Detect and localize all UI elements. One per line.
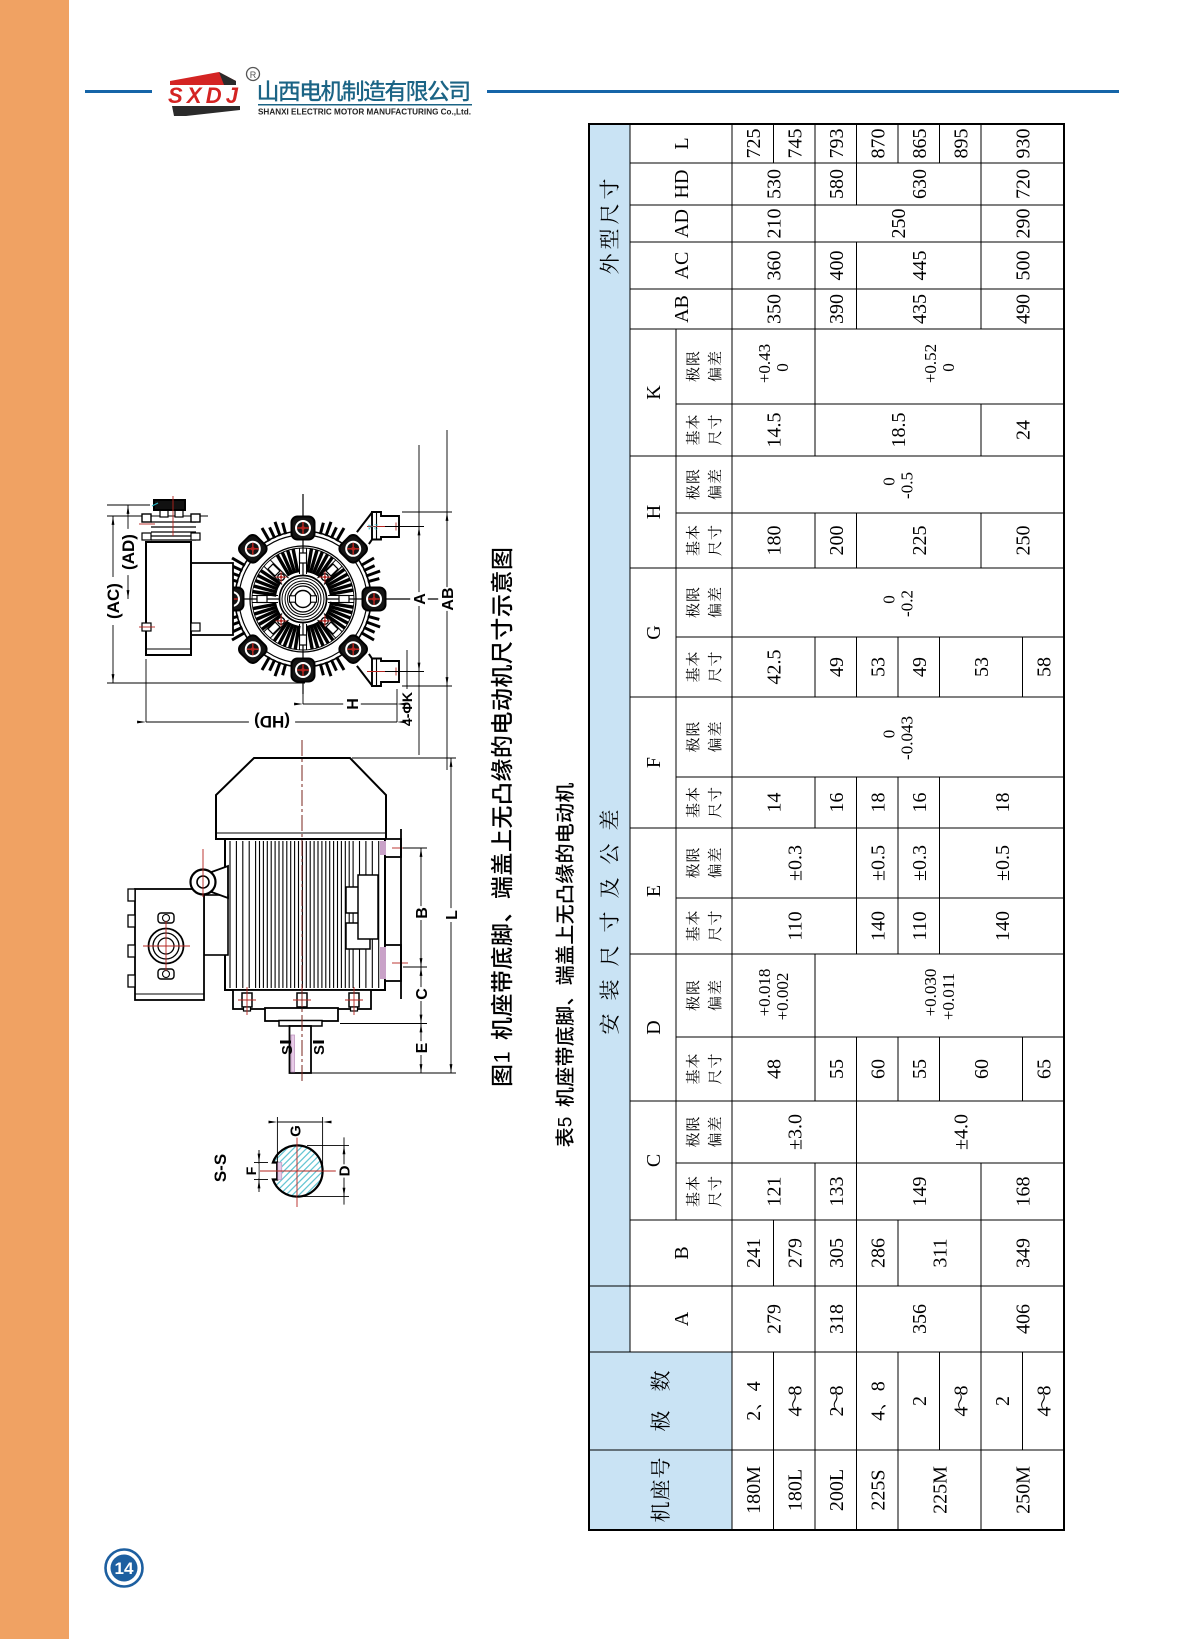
- svg-text:E: E: [643, 885, 665, 897]
- svg-text:16: 16: [826, 793, 848, 813]
- svg-text:180L: 180L: [784, 1469, 806, 1511]
- svg-text:530: 530: [764, 169, 786, 199]
- svg-text:8: 8: [950, 1386, 972, 1396]
- svg-text:930: 930: [1013, 129, 1035, 159]
- svg-text:500: 500: [1013, 251, 1035, 281]
- svg-text:2: 2: [992, 1396, 1014, 1406]
- svg-text:356: 356: [909, 1304, 931, 1334]
- svg-text:H: H: [643, 505, 665, 519]
- svg-text:168: 168: [1013, 1177, 1035, 1207]
- svg-text:895: 895: [950, 129, 972, 159]
- svg-text:E: E: [414, 1042, 431, 1053]
- svg-text:16: 16: [909, 793, 931, 813]
- svg-text:42.5: 42.5: [764, 650, 786, 685]
- svg-text:G: G: [287, 1125, 304, 1137]
- svg-text:4: 4: [784, 1407, 806, 1417]
- svg-text:55: 55: [909, 1059, 931, 1079]
- svg-text:±0.5: ±0.5: [992, 845, 1014, 881]
- svg-text:53: 53: [971, 657, 993, 677]
- svg-text:A: A: [671, 1311, 693, 1326]
- svg-text:+0.011: +0.011: [939, 973, 958, 1020]
- svg-text:406: 406: [1013, 1304, 1035, 1334]
- svg-text:200L: 200L: [826, 1469, 848, 1511]
- svg-text:225: 225: [909, 526, 931, 556]
- svg-text:49: 49: [909, 657, 931, 677]
- svg-text:18: 18: [992, 793, 1014, 813]
- svg-text:1: 1: [490, 1051, 515, 1063]
- svg-text:290: 290: [1013, 209, 1035, 239]
- svg-text:D: D: [643, 1020, 665, 1034]
- svg-text:(AD): (AD): [119, 534, 138, 570]
- svg-text:C: C: [414, 988, 431, 1000]
- svg-text:279: 279: [784, 1238, 806, 1268]
- svg-text:630: 630: [909, 169, 931, 199]
- svg-text:60: 60: [867, 1059, 889, 1079]
- svg-text:B: B: [414, 907, 431, 919]
- svg-text:286: 286: [867, 1238, 889, 1268]
- svg-text:8: 8: [1033, 1386, 1055, 1396]
- svg-text:HD: HD: [671, 170, 693, 199]
- svg-text:110: 110: [784, 911, 806, 940]
- svg-text:580: 580: [826, 169, 848, 199]
- svg-text:±0.5: ±0.5: [867, 845, 889, 881]
- svg-text:210: 210: [764, 209, 786, 239]
- svg-text:2-4: 2-4: [368, 523, 378, 530]
- svg-text:149: 149: [909, 1177, 931, 1207]
- svg-text:390: 390: [826, 294, 848, 324]
- svg-text:+0.002: +0.002: [773, 973, 792, 1021]
- svg-text:+0.52: +0.52: [921, 344, 940, 383]
- svg-text:250: 250: [1013, 526, 1035, 556]
- svg-text:±0.3: ±0.3: [784, 845, 806, 881]
- svg-text:318: 318: [826, 1304, 848, 1334]
- svg-text:445: 445: [909, 251, 931, 281]
- svg-text:0: 0: [939, 363, 958, 372]
- svg-text:+0.030: +0.030: [921, 969, 940, 1017]
- svg-text:4: 4: [867, 1411, 889, 1421]
- svg-text:(AC): (AC): [104, 583, 123, 619]
- svg-text:4: 4: [1033, 1407, 1055, 1417]
- svg-text:725: 725: [743, 129, 765, 159]
- svg-text:+0.018: +0.018: [755, 969, 774, 1017]
- svg-text:793: 793: [826, 129, 848, 159]
- svg-text:225M: 225M: [930, 1466, 952, 1514]
- svg-text:349: 349: [1013, 1238, 1035, 1268]
- svg-text:2: 2: [743, 1411, 765, 1421]
- svg-text:B: B: [671, 1246, 693, 1259]
- svg-text:S: S: [279, 1045, 296, 1055]
- svg-text:4: 4: [743, 1381, 765, 1391]
- svg-text:0: 0: [880, 595, 899, 604]
- svg-text:L: L: [444, 910, 461, 920]
- svg-text:121: 121: [764, 1177, 786, 1207]
- svg-text:AB: AB: [671, 295, 693, 323]
- svg-text:±4.0: ±4.0: [950, 1114, 972, 1150]
- svg-text:241: 241: [743, 1238, 765, 1268]
- svg-text:±0.3: ±0.3: [909, 845, 931, 881]
- svg-text:S: S: [311, 1045, 328, 1055]
- svg-text:18: 18: [867, 793, 889, 813]
- svg-text:180: 180: [764, 526, 786, 556]
- svg-text:S-S: S-S: [211, 1154, 230, 1182]
- svg-text:G: G: [643, 625, 665, 639]
- svg-text:250: 250: [888, 209, 910, 239]
- svg-text:L: L: [671, 137, 693, 149]
- svg-text:D: D: [336, 1165, 353, 1176]
- svg-text:0: 0: [773, 363, 792, 372]
- svg-text:H: H: [345, 698, 362, 710]
- svg-text:0: 0: [880, 477, 899, 486]
- svg-text:720: 720: [1013, 169, 1035, 199]
- svg-text:133: 133: [826, 1177, 848, 1207]
- svg-text:4-ΦK: 4-ΦK: [399, 692, 415, 726]
- svg-text:55: 55: [826, 1059, 848, 1079]
- svg-text:0: 0: [880, 730, 899, 739]
- svg-text:200: 200: [826, 526, 848, 556]
- svg-text:AC: AC: [671, 252, 693, 280]
- svg-text:490: 490: [1013, 294, 1035, 324]
- svg-text:24: 24: [1013, 420, 1035, 440]
- svg-text:-0.5: -0.5: [898, 472, 917, 499]
- svg-text:14.5: 14.5: [764, 413, 786, 448]
- svg-text:745: 745: [784, 129, 806, 159]
- svg-text:400: 400: [826, 251, 848, 281]
- svg-text:225S: 225S: [867, 1469, 889, 1510]
- svg-text:8: 8: [826, 1386, 848, 1396]
- svg-text:5: 5: [556, 1117, 577, 1128]
- svg-text:18.5: 18.5: [888, 413, 910, 448]
- svg-text:435: 435: [909, 294, 931, 324]
- svg-text:C: C: [643, 1154, 665, 1167]
- svg-text:14: 14: [764, 793, 786, 813]
- svg-text:58: 58: [1033, 657, 1055, 677]
- svg-text:(HD): (HD): [254, 712, 290, 731]
- svg-text:180M: 180M: [743, 1466, 765, 1514]
- svg-text:60: 60: [971, 1059, 993, 1079]
- svg-text:14: 14: [115, 1559, 134, 1578]
- svg-text:53: 53: [867, 657, 889, 677]
- svg-text:-0.2: -0.2: [898, 590, 917, 617]
- svg-text:8: 8: [867, 1381, 889, 1391]
- svg-text:870: 870: [867, 129, 889, 159]
- svg-text:8: 8: [784, 1386, 806, 1396]
- svg-text:865: 865: [909, 129, 931, 159]
- svg-text:350: 350: [764, 294, 786, 324]
- svg-text:305: 305: [826, 1238, 848, 1268]
- svg-text:F: F: [243, 1166, 259, 1175]
- svg-text:AD: AD: [671, 209, 693, 238]
- svg-text:48: 48: [764, 1059, 786, 1079]
- svg-text:2: 2: [826, 1407, 848, 1417]
- svg-text:2: 2: [909, 1396, 931, 1406]
- svg-text:A: A: [412, 593, 429, 605]
- svg-text:K: K: [643, 385, 665, 400]
- svg-text:140: 140: [992, 911, 1014, 941]
- svg-text:311: 311: [930, 1238, 952, 1267]
- svg-text:F: F: [643, 757, 665, 768]
- svg-text:4: 4: [950, 1407, 972, 1417]
- svg-text:AB: AB: [440, 587, 457, 610]
- svg-text:110: 110: [909, 911, 931, 940]
- svg-text:65: 65: [1033, 1059, 1055, 1079]
- svg-text:279: 279: [764, 1304, 786, 1334]
- svg-text:+0.43: +0.43: [755, 344, 774, 383]
- svg-text:49: 49: [826, 657, 848, 677]
- svg-text:140: 140: [867, 911, 889, 941]
- svg-text:250M: 250M: [1013, 1466, 1035, 1514]
- svg-text:-0.043: -0.043: [898, 716, 917, 760]
- svg-text:±3.0: ±3.0: [784, 1114, 806, 1150]
- svg-text:360: 360: [764, 251, 786, 281]
